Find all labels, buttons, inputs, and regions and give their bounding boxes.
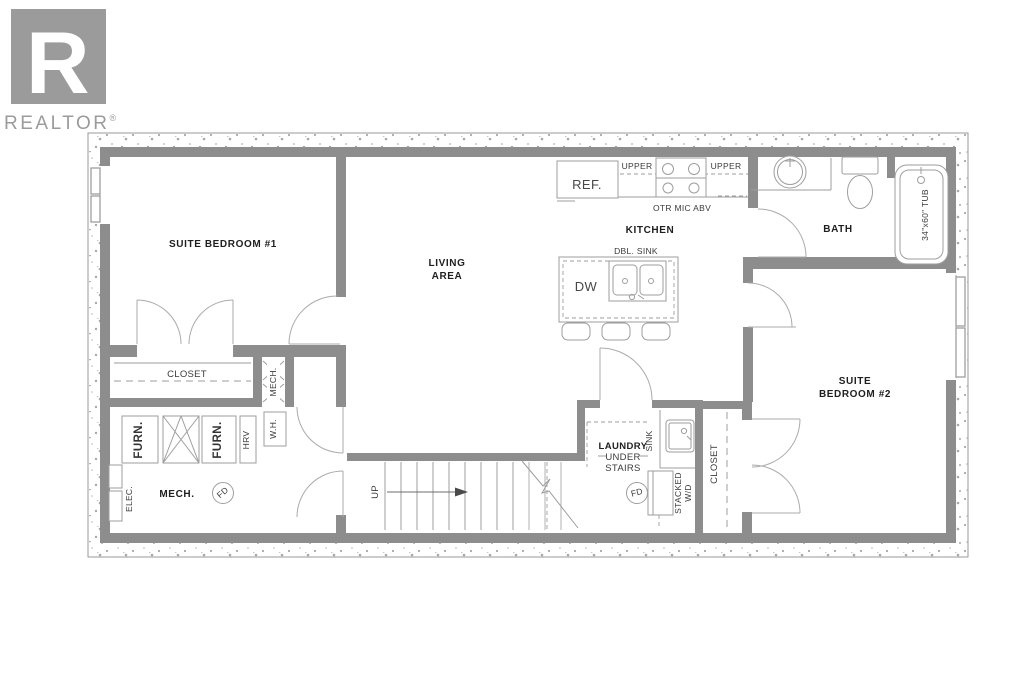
mech-chase: MECH. — [263, 361, 284, 402]
kitchen: REF. UPPER UPPER OTR MIC ABV KITCHEN DW … — [557, 158, 748, 340]
bath-door — [758, 209, 806, 257]
mech-label: MECH. — [159, 489, 194, 500]
laundry-sink — [666, 420, 694, 452]
living-label-1: LIVING — [429, 258, 466, 269]
kitchen-island: DW DBL. SINK — [559, 246, 678, 340]
mech-chase-label: MECH. — [268, 368, 278, 397]
laundry-door — [600, 348, 652, 400]
dw-label: DW — [575, 279, 598, 294]
up-arrow — [387, 488, 468, 497]
living-label-2: AREA — [432, 271, 463, 282]
up-label: UP — [370, 485, 381, 499]
hrv-label: HRV — [241, 431, 251, 450]
bath-label: BATH — [823, 224, 852, 235]
elec-panel-box2 — [109, 491, 122, 521]
furnace-x-box — [163, 416, 199, 463]
bedroom2-label-1: SUITE — [839, 376, 871, 387]
fd-laundry-label: FD — [630, 486, 644, 499]
bedroom2-door — [748, 283, 796, 327]
floor-plan-page: R REALTOR® — [0, 0, 1024, 682]
stairs: UP — [370, 461, 578, 530]
bedroom1-label: SUITE BEDROOM #1 — [169, 239, 277, 250]
furnace1-label: FURN. — [133, 421, 145, 458]
floor-plan-svg: R REALTOR® — [0, 0, 1024, 682]
bedroom1-closet: CLOSET — [114, 363, 251, 381]
floor-drain-laundry: FD — [627, 483, 648, 504]
fd-mech-label: FD — [215, 485, 231, 500]
closet1-label: CLOSET — [167, 369, 207, 380]
mech-room: FURN. FURN. HRV W.H. ELEC. MECH. FD — [109, 412, 286, 521]
elec-label: ELEC. — [124, 486, 134, 512]
laundry: LAUNDRY UNDER STAIRS SINK FD STACKED W/D — [587, 410, 695, 528]
bathroom: BATH 34"x60" TUB — [751, 156, 948, 264]
laundry-label-3: STAIRS — [605, 463, 640, 474]
bedroom2-closet: CLOSET — [709, 412, 727, 530]
bedroom1-door — [289, 296, 340, 344]
stacked-label-2: W/D — [683, 484, 693, 501]
dbl-sink-label: DBL. SINK — [614, 246, 658, 256]
laundry-label-2: UNDER — [605, 452, 640, 463]
window-right — [944, 273, 967, 380]
island-stools — [562, 323, 670, 340]
floor-drain-mech: FD — [213, 483, 234, 504]
toilet — [842, 157, 878, 209]
realtor-logo-letter: R — [26, 13, 90, 112]
bedroom2-closet-doors — [752, 419, 800, 513]
kitchen-label: KITCHEN — [626, 225, 675, 236]
stacked-washer-dryer: STACKED W/D — [648, 471, 693, 515]
realtor-logo: R REALTOR® — [4, 9, 119, 134]
laundry-label-1: LAUNDRY — [599, 441, 648, 452]
interior-walls — [110, 157, 946, 533]
realtor-wordmark: REALTOR® — [4, 113, 119, 134]
closet2-label: CLOSET — [709, 444, 720, 484]
stair-treads — [385, 462, 561, 530]
range — [656, 158, 706, 197]
upper-right-label: UPPER — [711, 161, 742, 171]
bedroom1-closet-doors — [137, 300, 233, 344]
stacked-label-1: STACKED — [673, 472, 683, 514]
tub-label: 34"x60" TUB — [920, 189, 930, 241]
double-sink — [609, 261, 666, 301]
upper-left-label: UPPER — [622, 161, 653, 171]
otr-mic-label: OTR MIC ABV — [653, 203, 711, 213]
stair-break-line — [522, 461, 578, 528]
bath-sink — [774, 156, 806, 188]
elec-panel-box1 — [109, 465, 122, 488]
landing-door — [297, 471, 343, 517]
ref-label: REF. — [572, 177, 602, 192]
sink-label: SINK — [644, 430, 654, 451]
bedroom2-label-2: BEDROOM #2 — [819, 389, 891, 400]
window-left — [89, 166, 111, 224]
water-heater-label: W.H. — [268, 419, 278, 439]
furnace2-label: FURN. — [212, 421, 224, 458]
mech-door — [297, 407, 343, 453]
